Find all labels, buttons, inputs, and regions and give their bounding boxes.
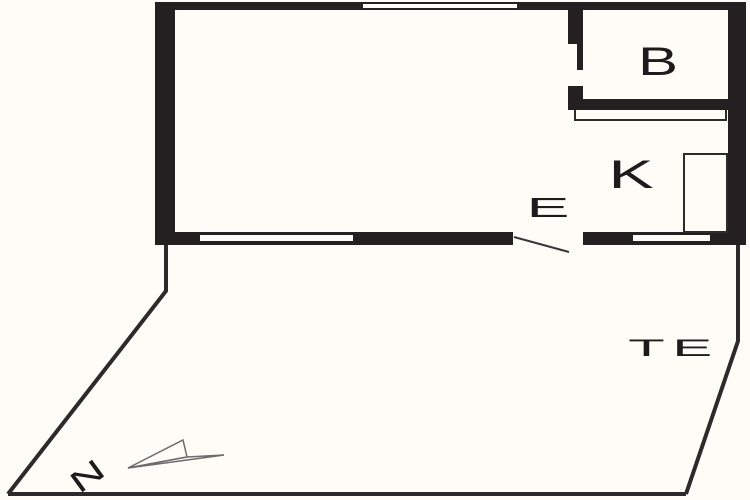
room-label-e: E: [527, 194, 570, 222]
niche-right-line: [725, 110, 727, 121]
terrace-boundary-right: [686, 245, 738, 494]
wall-right: [728, 2, 746, 245]
room-label-b: B: [638, 42, 678, 82]
wall-divider-stub: [568, 10, 583, 44]
room-label-te: TE: [628, 337, 720, 361]
wall-left: [155, 2, 175, 245]
door-jamb: [577, 44, 583, 70]
north-arrow-icon: [128, 440, 224, 468]
kitchen-counter: [683, 153, 728, 233]
window-bottom-left: [200, 235, 353, 241]
floorplan-canvas: B K E TE N: [0, 0, 750, 500]
door-swing-line: [514, 237, 569, 252]
window-top: [363, 4, 517, 8]
compass-n-label: N: [65, 455, 111, 500]
window-bottom-right: [633, 235, 710, 241]
wall-b-bottom: [568, 99, 730, 110]
room-label-k: K: [608, 155, 653, 195]
niche-bottom-line: [574, 119, 727, 121]
